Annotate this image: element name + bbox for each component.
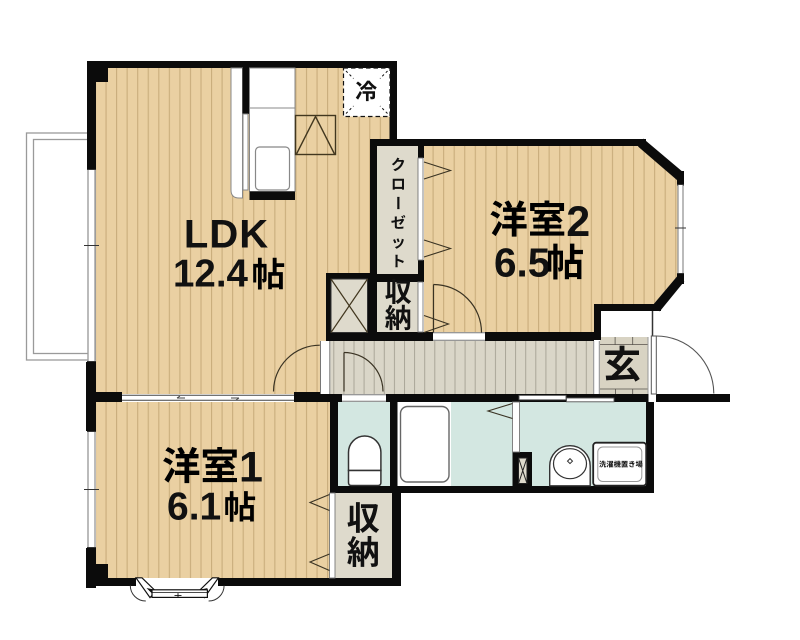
svg-text:12.4: 12.4 [173,253,249,296]
svg-text:6.5: 6.5 [494,240,550,286]
svg-text:2: 2 [566,198,590,246]
svg-text:1: 1 [239,444,263,492]
svg-text:6.1: 6.1 [167,486,221,529]
svg-text:LDK: LDK [184,213,269,257]
